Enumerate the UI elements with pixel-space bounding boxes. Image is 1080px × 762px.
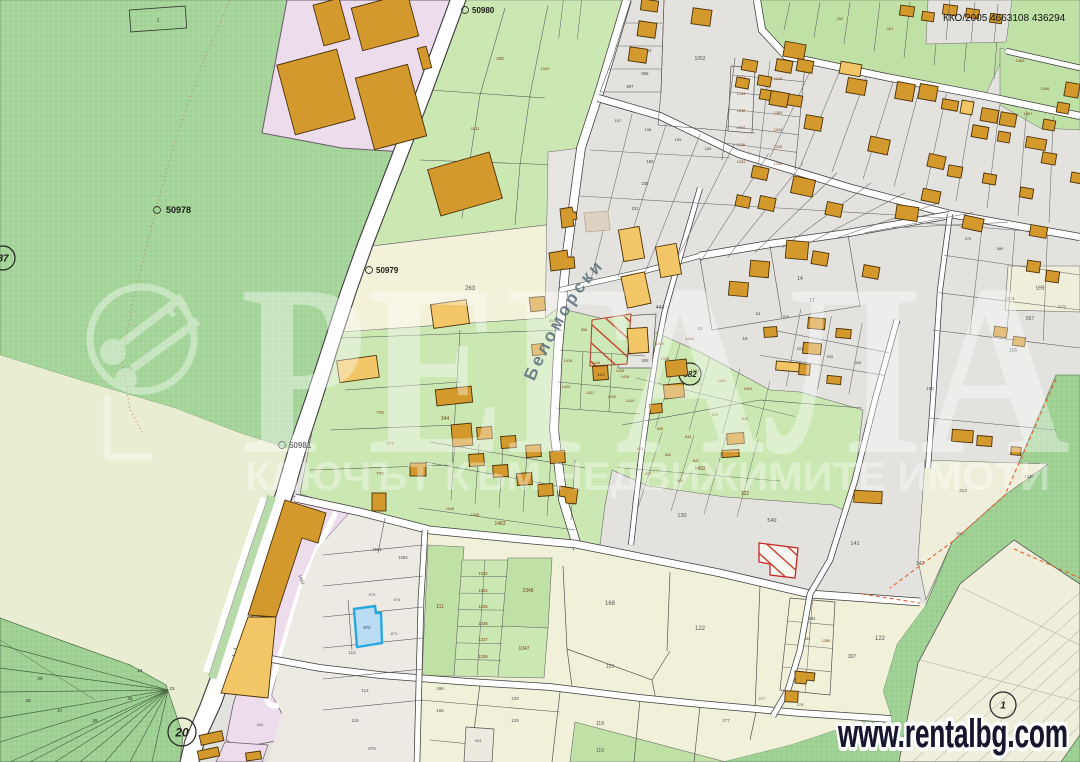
svg-text:ККО/2005 4663108 436294: ККО/2005 4663108 436294 (943, 13, 1066, 24)
svg-text:1238: 1238 (737, 109, 745, 113)
svg-text:118: 118 (596, 721, 604, 727)
svg-text:1052: 1052 (694, 56, 705, 62)
svg-text:123: 123 (606, 664, 615, 670)
svg-text:684: 684 (809, 616, 817, 621)
svg-text:1334: 1334 (478, 588, 488, 593)
svg-text:168: 168 (605, 601, 616, 607)
svg-text:277: 277 (759, 696, 766, 701)
svg-text:1002: 1002 (541, 66, 551, 71)
svg-text:442: 442 (257, 722, 264, 727)
svg-text:261: 261 (887, 26, 894, 31)
svg-text:1366: 1366 (1041, 86, 1051, 91)
svg-text:400: 400 (496, 56, 504, 61)
svg-text:1246: 1246 (774, 162, 782, 166)
svg-text:25: 25 (127, 696, 133, 701)
svg-text:1236: 1236 (737, 143, 745, 147)
svg-text:549: 549 (767, 518, 776, 524)
svg-text:150: 150 (647, 159, 655, 164)
svg-text:122: 122 (875, 636, 886, 642)
svg-text:1: 1 (1000, 701, 1006, 712)
svg-text:1233: 1233 (737, 92, 745, 96)
svg-text:1: 1 (157, 18, 160, 24)
svg-text:24: 24 (137, 668, 143, 673)
svg-text:111: 111 (436, 604, 444, 610)
svg-text:1367: 1367 (1024, 111, 1034, 116)
svg-text:125: 125 (511, 718, 519, 723)
svg-text:277: 277 (722, 718, 730, 723)
svg-text:1337: 1337 (478, 637, 488, 642)
svg-text:974: 974 (394, 597, 401, 602)
svg-text:www.rentalbg.com: www.rentalbg.com (837, 712, 1068, 756)
svg-text:128: 128 (511, 696, 519, 701)
svg-text:23: 23 (169, 686, 175, 691)
svg-text:159: 159 (675, 137, 682, 142)
svg-text:1383: 1383 (774, 111, 782, 115)
svg-text:1348: 1348 (522, 588, 533, 594)
svg-text:871: 871 (391, 631, 398, 636)
svg-text:1463: 1463 (494, 521, 505, 527)
svg-text:20: 20 (174, 725, 189, 739)
svg-text:307: 307 (848, 654, 857, 660)
svg-text:141: 141 (850, 541, 859, 547)
svg-text:1244: 1244 (774, 128, 782, 132)
svg-text:252: 252 (837, 16, 844, 21)
svg-text:26: 26 (92, 718, 98, 723)
svg-text:113: 113 (348, 650, 356, 655)
svg-text:1332: 1332 (478, 571, 488, 576)
svg-text:1240: 1240 (774, 77, 782, 81)
svg-text:1338: 1338 (478, 654, 488, 659)
svg-text:50978: 50978 (166, 205, 191, 215)
svg-text:875: 875 (368, 746, 376, 751)
svg-text:166: 166 (436, 686, 444, 691)
svg-text:1335: 1335 (478, 604, 488, 609)
svg-text:165: 165 (436, 708, 444, 713)
svg-text:115: 115 (351, 718, 359, 723)
svg-text:1237: 1237 (737, 126, 745, 130)
svg-text:160: 160 (705, 146, 712, 151)
svg-text:50980: 50980 (472, 6, 495, 15)
svg-text:1355: 1355 (822, 639, 830, 643)
svg-text:130: 130 (677, 513, 686, 519)
svg-text:28: 28 (25, 698, 31, 703)
svg-text:1545: 1545 (471, 513, 479, 517)
svg-text:1132: 1132 (471, 126, 480, 131)
svg-text:231: 231 (632, 206, 640, 211)
svg-text:972: 972 (364, 625, 372, 630)
svg-text:158: 158 (645, 127, 652, 132)
svg-text:КЛЮЧЪТ КЪМ НЕДВИЖИМИТЕ ИМОТИ: КЛЮЧЪТ КЪМ НЕДВИЖИМИТЕ ИМОТИ (245, 455, 1050, 499)
svg-text:230: 230 (642, 181, 650, 186)
svg-text:122: 122 (695, 626, 706, 632)
svg-text:1546: 1546 (446, 507, 454, 511)
svg-text:29: 29 (37, 676, 43, 681)
svg-text:1581: 1581 (372, 547, 382, 552)
svg-text:157: 157 (615, 118, 622, 123)
svg-text:119: 119 (596, 748, 604, 754)
svg-text:27: 27 (57, 708, 63, 713)
svg-text:597: 597 (627, 84, 635, 89)
svg-text:87: 87 (0, 254, 9, 265)
svg-text:114: 114 (361, 688, 369, 693)
svg-text:904: 904 (475, 738, 482, 743)
svg-text:973: 973 (369, 592, 376, 597)
svg-text:1047: 1047 (518, 646, 529, 652)
svg-text:1582: 1582 (398, 555, 408, 560)
svg-text:1365: 1365 (1016, 58, 1026, 63)
svg-text:1336: 1336 (478, 621, 488, 626)
svg-text:556: 556 (642, 71, 650, 76)
svg-text:1234: 1234 (737, 160, 745, 164)
